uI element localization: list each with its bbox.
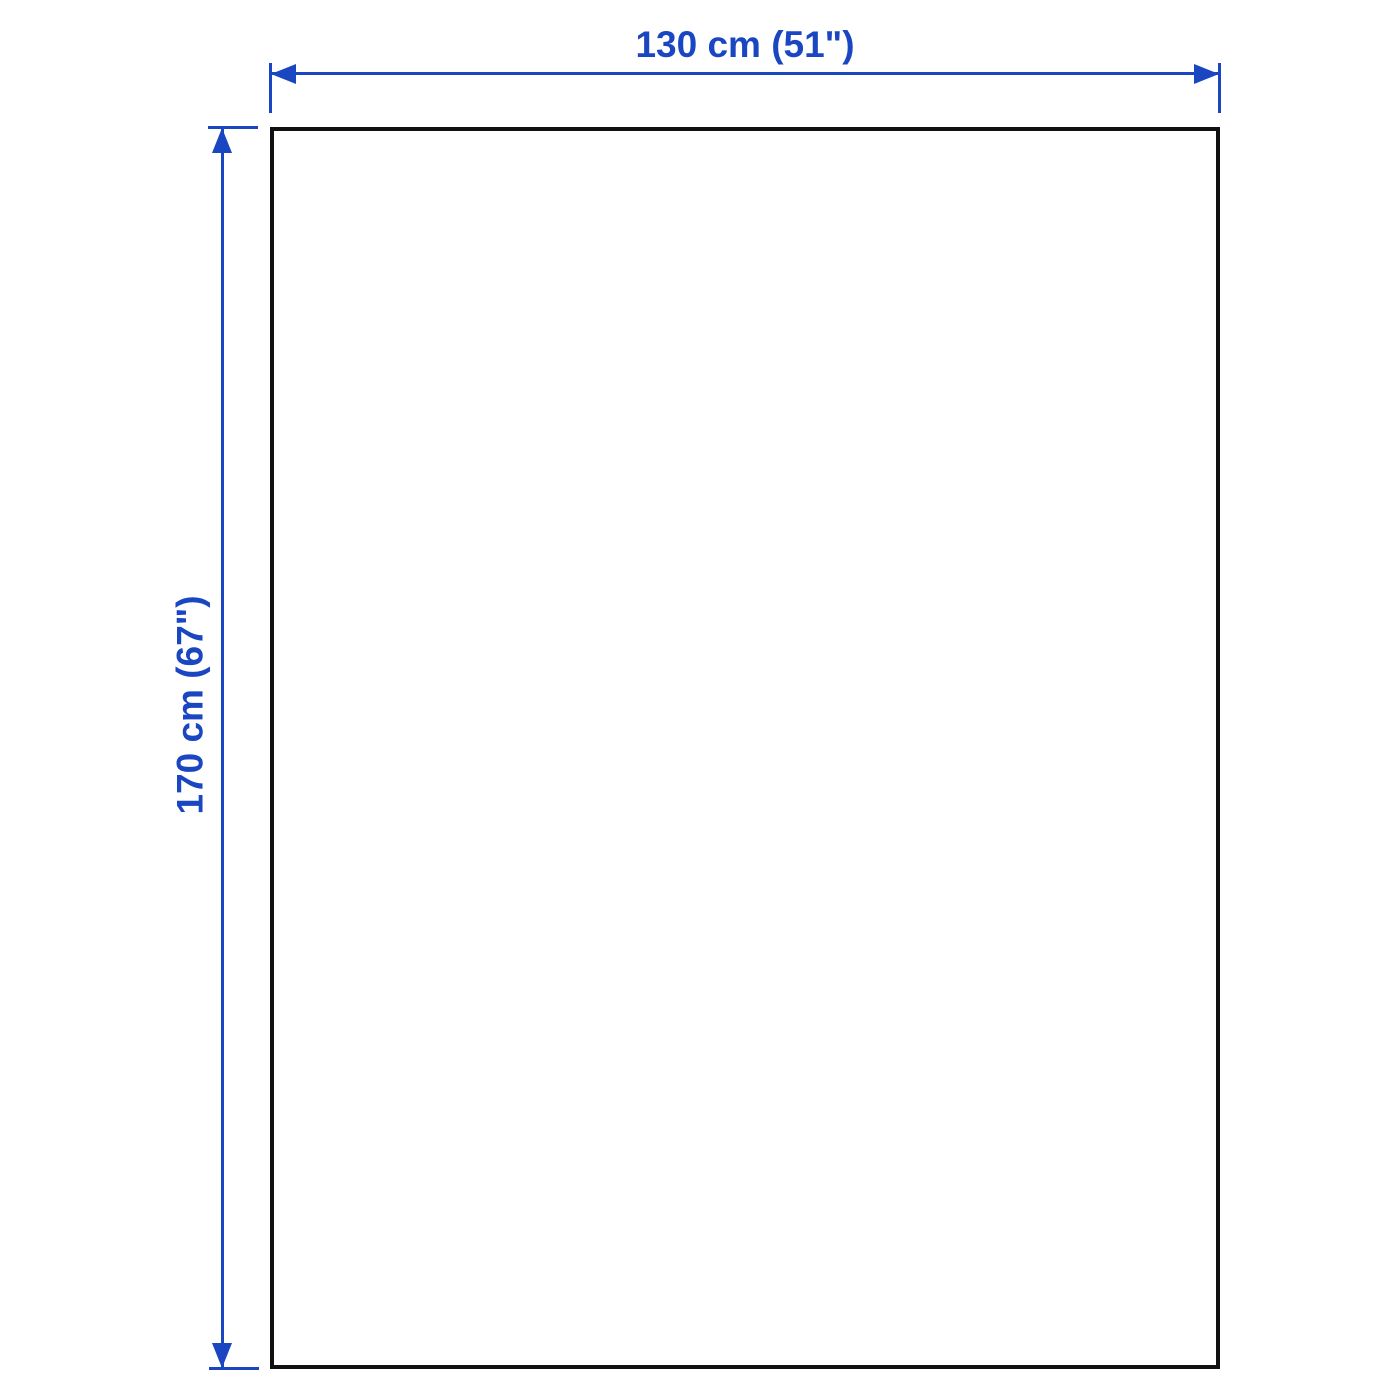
height-dimension-line: [221, 129, 224, 1367]
height-dimension-label: 170 cm (67"): [172, 595, 209, 814]
height-extension-tick-top: [208, 126, 258, 129]
arrowhead-right-icon: [1194, 64, 1219, 84]
width-extension-tick-left: [269, 63, 272, 113]
width-extension-tick-right: [1218, 63, 1221, 113]
arrowhead-down-icon: [212, 1343, 232, 1368]
arrowhead-up-icon: [212, 128, 232, 153]
width-dimension-line: [272, 72, 1218, 75]
height-extension-tick-bottom: [209, 1367, 259, 1370]
width-dimension-label: 130 cm (51"): [270, 26, 1220, 63]
product-outline-rectangle: [270, 127, 1220, 1369]
arrowhead-left-icon: [271, 64, 296, 84]
dimension-diagram: 130 cm (51") 170 cm (67"): [0, 0, 1400, 1400]
